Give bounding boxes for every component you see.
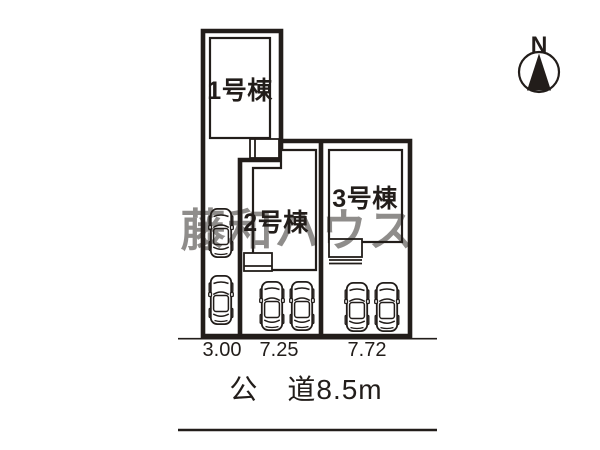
car-icon [290,282,315,330]
lot-2-frontage-dimension: 7.25 [260,339,299,361]
lot-1-label: 1号棟 [207,77,273,105]
lot-3-frontage-dimension: 7.72 [348,339,387,361]
car-icon [260,282,285,330]
compass-needle-icon [527,54,551,91]
watermark: 藤和ハウス [180,205,415,256]
site-plan: 1号棟 2号棟 3号棟 3.00 7.25 7.72 公 道8.5m N 藤和ハ… [0,0,600,450]
compass: N [519,32,559,93]
car-icon [345,283,370,331]
lot-1-frontage-dimension: 3.00 [203,339,242,361]
building-1-porch [250,139,279,158]
car-icon [375,283,400,331]
car-icon [209,276,234,324]
road-label: 公 道8.5m [229,374,382,405]
site-plan-svg: 1号棟 2号棟 3号棟 3.00 7.25 7.72 公 道8.5m N 藤和ハ… [0,0,600,450]
